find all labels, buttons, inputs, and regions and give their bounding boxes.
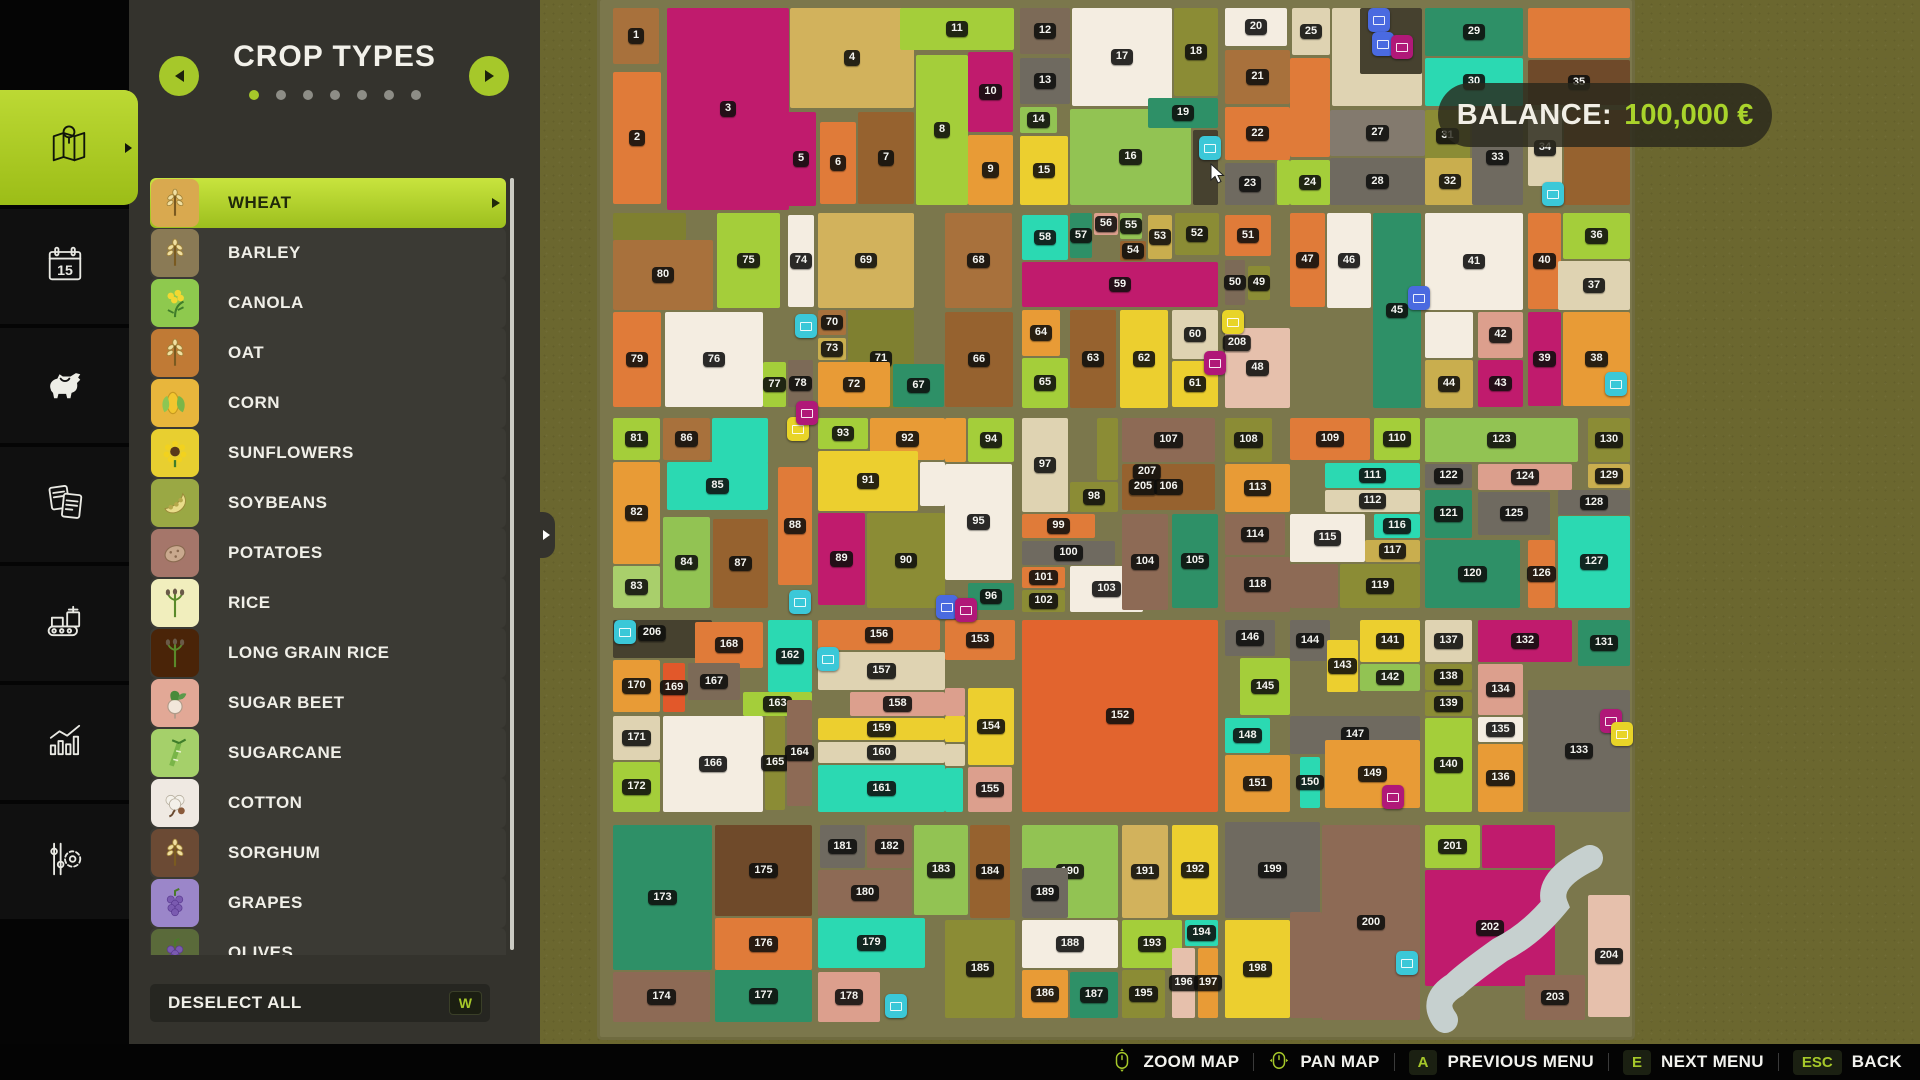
sell-point-icon[interactable] [796, 401, 818, 425]
map-field[interactable]: 80 [613, 240, 713, 310]
map-field[interactable]: 49 [1248, 266, 1270, 300]
map-field[interactable]: 149 [1325, 740, 1420, 808]
map-field[interactable]: 126 [1528, 540, 1555, 608]
crop-label: POTATOES [228, 543, 323, 563]
production-icon [38, 597, 92, 650]
mouse-zoom-icon [1111, 1047, 1133, 1078]
map-field[interactable]: 152 [1022, 620, 1218, 812]
map-field[interactable]: 119 [1340, 564, 1420, 608]
field-number-badge: 72 [843, 377, 865, 393]
map-field[interactable]: 139 [1425, 692, 1472, 716]
map-field[interactable]: 197 [1198, 948, 1218, 1018]
map-field[interactable]: 114 [1225, 514, 1285, 555]
map-field[interactable]: 58 [1022, 215, 1068, 260]
map-field[interactable]: 94 [968, 418, 1014, 462]
field-number-badge: 152 [1106, 708, 1134, 724]
sell-point-icon[interactable] [1204, 351, 1226, 375]
map-field[interactable]: 107 [1122, 418, 1215, 462]
map-field[interactable]: 171 [613, 716, 660, 760]
field-number-badge: 103 [1092, 581, 1120, 597]
production-icon[interactable] [1396, 951, 1418, 975]
barley-icon [151, 229, 199, 277]
production-icon[interactable] [1199, 136, 1221, 160]
map-field[interactable]: 20 [1225, 8, 1287, 46]
sidebar-item-statistics[interactable] [0, 685, 129, 800]
field-number-badge: 73 [821, 341, 843, 357]
map-field[interactable]: 15 [1020, 136, 1068, 205]
map-field[interactable]: 192 [1172, 825, 1218, 915]
map-field[interactable]: 86 [663, 418, 710, 460]
map-field[interactable]: 72 [818, 362, 890, 407]
map-field[interactable]: 81 [613, 418, 660, 460]
farm-icon[interactable] [1611, 722, 1633, 746]
map-field[interactable]: 90 [867, 513, 945, 608]
crop-row-corn[interactable]: CORN [150, 378, 506, 428]
map-field[interactable]: 146 [1225, 620, 1275, 656]
map-field[interactable]: 202 [1425, 870, 1555, 986]
field-number-badge: 123 [1487, 432, 1515, 448]
map-field[interactable]: 199 [1225, 822, 1320, 918]
map-field[interactable]: 50 [1225, 260, 1245, 305]
map-field[interactable]: 182 [867, 825, 912, 868]
map-field[interactable]: 56 [1094, 213, 1118, 235]
map-field[interactable]: 88 [778, 467, 812, 585]
map-field[interactable]: 3 [667, 8, 789, 210]
map-field[interactable]: 196 [1172, 948, 1195, 1018]
map-field[interactable]: 137 [1425, 620, 1472, 662]
map-field[interactable]: 101 [1022, 567, 1065, 588]
map-field[interactable]: 123 [1425, 418, 1578, 462]
crop-row-grapes[interactable]: GRAPES [150, 878, 506, 928]
map-field[interactable]: 136 [1478, 744, 1523, 812]
map-field[interactable]: 145 [1240, 658, 1290, 715]
map-field[interactable]: 69 [818, 213, 914, 308]
map-field[interactable]: 32 [1425, 158, 1475, 205]
hint-previous-menu[interactable]: APREVIOUS MENU [1409, 1050, 1594, 1075]
map-field[interactable]: 11 [900, 8, 1014, 50]
map-field[interactable]: 36 [1563, 213, 1630, 259]
map-field[interactable]: 203 [1525, 975, 1585, 1020]
map-field[interactable]: 122 [1425, 464, 1472, 488]
map-field[interactable]: 41 [1425, 213, 1523, 310]
sidebar-item-calendar[interactable]: 15 [0, 209, 129, 324]
sidebar-item-settings[interactable] [0, 804, 129, 919]
crop-row-potatoes[interactable]: POTATOES [150, 528, 506, 578]
map-field[interactable]: 54 [1120, 241, 1146, 261]
map-patch [920, 462, 945, 506]
map-field[interactable]: 117 [1365, 540, 1420, 562]
field-number-badge: 6 [830, 155, 846, 171]
map-field[interactable]: 10 [968, 52, 1013, 132]
map-field[interactable]: 9 [968, 135, 1013, 205]
map-field[interactable]: 19 [1148, 98, 1218, 128]
crop-row-rice[interactable]: RICE [150, 578, 506, 628]
field-number-badge: 141 [1376, 633, 1404, 649]
map-field[interactable]: 143 [1327, 640, 1358, 692]
map-field[interactable]: 85 [667, 462, 768, 510]
map-field[interactable]: 17 [1072, 8, 1172, 106]
field-number-badge: 206 [638, 625, 666, 641]
map-field[interactable]: 134 [1478, 664, 1523, 715]
map-field[interactable]: 78 [788, 360, 813, 407]
field-number-badge: 24 [1299, 175, 1321, 191]
map-field[interactable]: 59 [1022, 262, 1218, 307]
map-field[interactable]: 115 [1290, 514, 1365, 562]
map-field[interactable]: 184 [970, 825, 1010, 918]
map-field[interactable]: 1 [613, 8, 659, 64]
map-field[interactable]: 110 [1374, 418, 1420, 460]
map-field[interactable]: 93 [818, 418, 868, 449]
field-number-badge: 43 [1489, 376, 1511, 392]
map-field[interactable]: 158 [850, 692, 945, 716]
crop-row-canola[interactable]: CANOLA [150, 278, 506, 328]
field-number-badge: 129 [1595, 468, 1623, 484]
map-field[interactable]: 186 [1022, 970, 1068, 1018]
map-field[interactable]: 83 [613, 566, 660, 608]
map-field[interactable]: 142 [1360, 664, 1420, 691]
map-field[interactable]: 12 [1020, 8, 1070, 54]
panel-collapse-handle[interactable] [538, 512, 555, 558]
map-field[interactable]: 2 [613, 72, 661, 204]
map-field[interactable]: 151 [1225, 755, 1290, 812]
map-field[interactable]: 18 [1174, 8, 1218, 96]
field-number-badge: 104 [1131, 554, 1159, 570]
map-field[interactable]: 77 [763, 362, 786, 407]
map-field[interactable]: 125 [1478, 492, 1550, 535]
map-field[interactable]: 84 [663, 517, 710, 608]
sidebar-item-contracts[interactable] [0, 447, 129, 562]
sidebar-item-map[interactable] [0, 90, 138, 205]
field-number-badge: 158 [883, 696, 911, 712]
map-field[interactable]: 98 [1070, 482, 1118, 512]
grapes-icon [151, 879, 199, 927]
map-field[interactable]: 173 [613, 825, 712, 970]
map-patch [1425, 312, 1473, 358]
field-number-badge: 80 [652, 267, 674, 283]
map-field[interactable]: 45 [1373, 213, 1421, 408]
map-field[interactable]: 128 [1558, 490, 1630, 515]
vehicle-shop-icon[interactable] [1408, 286, 1430, 310]
crop-label: RICE [228, 593, 271, 613]
map-field[interactable]: 138 [1425, 664, 1472, 690]
deselect-all-key-badge: W [449, 991, 482, 1015]
sell-point-icon[interactable] [955, 598, 977, 622]
map-field[interactable]: 141 [1360, 620, 1420, 662]
vehicle-shop-icon[interactable] [1368, 8, 1390, 32]
map-field[interactable]: 87 [713, 519, 768, 608]
field-number-badge: 93 [832, 426, 854, 442]
map-field[interactable]: 154 [968, 688, 1014, 765]
production-icon[interactable] [795, 314, 817, 338]
map-field[interactable]: 64 [1022, 310, 1060, 356]
map-field[interactable]: 65 [1022, 358, 1068, 408]
map-field[interactable]: 8 [916, 55, 968, 205]
hint-back[interactable]: ESCBACK [1793, 1050, 1902, 1075]
map-field[interactable]: 135 [1478, 717, 1523, 742]
field-number-badge: 162 [776, 648, 804, 664]
field-number-badge: 78 [789, 376, 811, 392]
map-field[interactable]: 97 [1022, 418, 1068, 512]
panel-title: CROP TYPES [129, 40, 540, 74]
mouse-cursor [1209, 163, 1227, 185]
map-field[interactable]: 167 [688, 663, 740, 700]
map-field[interactable]: 55 [1120, 213, 1142, 239]
map-field[interactable]: 120 [1425, 540, 1520, 608]
field-number-badge: 33 [1486, 150, 1508, 166]
hint-next-menu[interactable]: ENEXT MENU [1623, 1050, 1764, 1075]
map-field[interactable]: 129 [1588, 464, 1630, 488]
page-dot [384, 90, 394, 100]
map-field[interactable]: 189 [1022, 868, 1068, 918]
map-field[interactable]: 175 [715, 825, 812, 916]
map-field[interactable]: 100 [1022, 541, 1115, 565]
field-number-badge: 19 [1172, 105, 1194, 121]
map-field[interactable]: 140 [1425, 718, 1472, 812]
map-field[interactable]: 42 [1478, 312, 1523, 358]
map-field[interactable]: 99 [1022, 514, 1095, 538]
crop-row-wheat[interactable]: WHEAT [150, 178, 506, 228]
map-field[interactable]: 89 [818, 513, 865, 605]
map-field[interactable]: 176 [715, 918, 812, 970]
map-field[interactable]: 127 [1558, 516, 1630, 608]
map-field[interactable]: 74 [788, 215, 814, 307]
crop-label: BARLEY [228, 243, 301, 263]
production-icon[interactable] [885, 994, 907, 1018]
map-field[interactable]: 188 [1022, 920, 1118, 968]
production-icon[interactable] [789, 590, 811, 614]
map-field[interactable]: 118 [1225, 557, 1290, 612]
field-number-badge: 100 [1054, 545, 1082, 561]
field-number-badge: 3 [720, 101, 736, 117]
map-field[interactable]: 111 [1325, 463, 1420, 488]
map-field[interactable]: 23 [1225, 163, 1275, 205]
map-field[interactable]: 95 [945, 464, 1012, 580]
field-number-badge: 170 [622, 678, 650, 694]
map-patch [1277, 160, 1290, 205]
crop-row-soybeans[interactable]: SOYBEANS [150, 478, 506, 528]
sidebar-item-animals[interactable] [0, 328, 129, 443]
map-field[interactable]: 174 [613, 972, 710, 1022]
map-field[interactable]: 160 [818, 742, 945, 763]
map-field[interactable]: 200 [1322, 825, 1420, 1020]
map-field[interactable]: 68 [945, 213, 1012, 308]
field-number-badge: 18 [1185, 44, 1207, 60]
hint-label: NEXT MENU [1661, 1052, 1764, 1072]
field-number-badge: 110 [1383, 431, 1411, 447]
crop-row-long-grain-rice[interactable]: LONG GRAIN RICE [150, 628, 506, 678]
production-icon[interactable] [1542, 182, 1564, 206]
field-number-badge: 184 [976, 864, 1004, 880]
crop-label: OLIVES [228, 943, 293, 955]
map-field[interactable]: 164 [787, 700, 812, 806]
map-field[interactable]: 13 [1020, 58, 1070, 104]
production-icon[interactable] [817, 647, 839, 671]
map-field[interactable]: 28 [1330, 158, 1425, 205]
field-number-badge: 167 [700, 674, 728, 690]
crop-types-panel: CROP TYPES WHEATBARLEYCANOLAOATCORNSUNFL… [129, 0, 540, 1044]
map-field[interactable]: 183 [914, 825, 968, 915]
map-field[interactable]: 144 [1290, 620, 1330, 661]
map-field[interactable]: 91 [818, 451, 918, 511]
field-number-badge: 12 [1034, 23, 1056, 39]
field-number-badge: 153 [966, 632, 994, 648]
map-field[interactable]: 66 [945, 312, 1013, 407]
field-number-badge: 200 [1357, 915, 1385, 931]
map-field[interactable]: 27 [1330, 110, 1425, 156]
map-field[interactable]: 46 [1327, 213, 1371, 308]
crop-label: LONG GRAIN RICE [228, 643, 389, 663]
field-number-badge: 146 [1236, 630, 1264, 646]
page-dot [411, 90, 421, 100]
map-field[interactable]: 14 [1020, 107, 1057, 133]
map-field[interactable]: 29 [1425, 8, 1523, 56]
production-icon[interactable] [1605, 372, 1627, 396]
map-field[interactable]: 22 [1225, 107, 1290, 160]
field-number-badge: 114 [1241, 527, 1269, 543]
map-field[interactable]: 201 [1425, 825, 1480, 868]
map-field[interactable]: 155 [968, 767, 1012, 812]
map-field[interactable]: 130 [1588, 418, 1630, 462]
sell-point-icon[interactable] [1391, 35, 1413, 59]
field-number-badge: 143 [1328, 658, 1356, 674]
map-field[interactable]: 57 [1070, 213, 1092, 258]
map-field[interactable]: 70 [818, 310, 846, 335]
sidebar-item-production[interactable] [0, 566, 129, 681]
map-field[interactable]: 112 [1325, 490, 1420, 512]
map-field[interactable]: 124 [1478, 464, 1572, 490]
map-field[interactable]: 194 [1185, 920, 1218, 946]
olives-icon [151, 929, 199, 955]
map-field[interactable]: 165 [765, 716, 785, 810]
map-field[interactable]: 43 [1478, 360, 1523, 407]
map-field[interactable]: 169 [663, 663, 685, 712]
map-field[interactable]: 105 [1172, 514, 1218, 608]
field-number-badge: 181 [828, 839, 856, 855]
map-field[interactable]: 148 [1225, 718, 1270, 753]
map-field[interactable]: 102 [1022, 590, 1065, 612]
map-field[interactable]: 39 [1528, 312, 1561, 406]
map-field[interactable]: 67 [893, 364, 944, 407]
map-field[interactable]: 168 [695, 622, 763, 668]
map-field[interactable]: 76 [665, 312, 763, 407]
map-field[interactable]: 172 [613, 762, 660, 812]
map-field[interactable]: 162 [768, 620, 812, 692]
map-field[interactable]: 21 [1225, 50, 1290, 104]
map-field[interactable]: 179 [818, 918, 925, 968]
map-field[interactable]: 25 [1292, 8, 1330, 55]
map-field[interactable]: 47 [1290, 213, 1325, 307]
map-field[interactable]: 150 [1300, 757, 1320, 808]
crop-row-sugar-beet[interactable]: SUGAR BEET [150, 678, 506, 728]
farm-icon[interactable] [1222, 310, 1244, 334]
map-patch [712, 418, 768, 464]
map-field[interactable]: 161 [818, 765, 945, 812]
field-number-badge: 82 [625, 505, 647, 521]
map-field[interactable]: 181 [820, 825, 865, 868]
statistics-icon [38, 716, 92, 769]
map-field[interactable]: 191 [1122, 825, 1168, 918]
map-field[interactable]: 63 [1070, 310, 1116, 408]
separator [1608, 1053, 1609, 1071]
crop-row-olives[interactable]: OLIVES [150, 928, 506, 955]
crop-row-sorghum[interactable]: SORGHUM [150, 828, 506, 878]
map-field[interactable]: 73 [818, 338, 846, 360]
map-field[interactable]: 153 [945, 620, 1015, 660]
map-field[interactable]: 178 [818, 972, 880, 1022]
field-number-badge: 56 [1095, 216, 1117, 232]
field-number-badge: 183 [927, 862, 955, 878]
map-field[interactable]: 113 [1225, 464, 1290, 512]
map-field[interactable]: 116 [1374, 514, 1420, 538]
crop-row-oat[interactable]: OAT [150, 328, 506, 378]
map-field[interactable]: 204 [1588, 895, 1630, 1017]
field-number-badge: 177 [749, 988, 777, 1004]
map-field[interactable]: 198 [1225, 920, 1290, 1018]
crop-row-sugarcane[interactable]: SUGARCANE [150, 728, 506, 778]
crop-row-cotton[interactable]: COTTON [150, 778, 506, 828]
map-field[interactable]: 156 [818, 620, 940, 650]
hint-pan-map[interactable]: PAN MAP [1268, 1047, 1379, 1078]
map-field[interactable]: 180 [818, 870, 912, 916]
map-field[interactable]: 132 [1478, 620, 1572, 662]
map-field[interactable]: 159 [818, 718, 945, 740]
map-field[interactable]: 75 [717, 213, 780, 308]
production-icon[interactable] [614, 620, 636, 644]
map-field[interactable]: 104 [1122, 514, 1168, 610]
farm-map[interactable]: 1234567811109121314151716181920212223242… [600, 0, 1632, 1037]
map-field[interactable]: 185 [945, 920, 1015, 1018]
map-field[interactable]: 40 [1528, 213, 1561, 309]
crop-row-barley[interactable]: BARLEY [150, 228, 506, 278]
map-field[interactable]: 62 [1120, 310, 1168, 408]
corn-icon [151, 379, 199, 427]
map-field[interactable]: 121 [1425, 490, 1472, 538]
map-field[interactable]: 166 [663, 716, 763, 812]
crop-label: WHEAT [228, 193, 292, 213]
map-field[interactable]: 53 [1148, 215, 1172, 259]
field-number-badge: 74 [790, 253, 812, 269]
map-field[interactable]: 51 [1225, 215, 1271, 256]
map-field[interactable]: 195 [1122, 970, 1165, 1018]
map-field[interactable]: 4 [790, 8, 914, 108]
map-field[interactable]: 7 [858, 112, 914, 204]
map-field[interactable]: 108 [1225, 418, 1272, 462]
map-field[interactable]: 37 [1558, 261, 1630, 310]
map-field[interactable]: 6 [820, 122, 856, 204]
map-field[interactable]: 109 [1290, 418, 1370, 460]
map-field[interactable]: 170 [613, 660, 660, 712]
crop-list-scrollbar[interactable] [510, 178, 514, 950]
field-number-badge: 45 [1386, 303, 1408, 319]
map-field[interactable]: 177 [715, 970, 812, 1022]
map-field[interactable]: 5 [786, 112, 816, 206]
deselect-all-button[interactable]: DESELECT ALL W [150, 984, 490, 1022]
map-field[interactable]: 24 [1290, 160, 1330, 205]
field-number-badge: 164 [785, 745, 813, 761]
map-field[interactable]: 187 [1070, 972, 1118, 1018]
map-field[interactable]: 79 [613, 312, 661, 407]
map-field[interactable]: 52 [1175, 213, 1219, 255]
sell-point-icon[interactable] [1382, 785, 1404, 809]
map-patch [1290, 564, 1338, 608]
map-field[interactable]: 82 [613, 462, 660, 564]
field-number-badge: 113 [1244, 480, 1272, 496]
map-field[interactable]: 44 [1425, 360, 1473, 408]
map-field[interactable]: 131 [1578, 620, 1630, 666]
field-number-badge: 77 [763, 377, 785, 393]
hint-zoom-map[interactable]: ZOOM MAP [1111, 1047, 1239, 1078]
crop-row-sunflowers[interactable]: SUNFLOWERS [150, 428, 506, 478]
